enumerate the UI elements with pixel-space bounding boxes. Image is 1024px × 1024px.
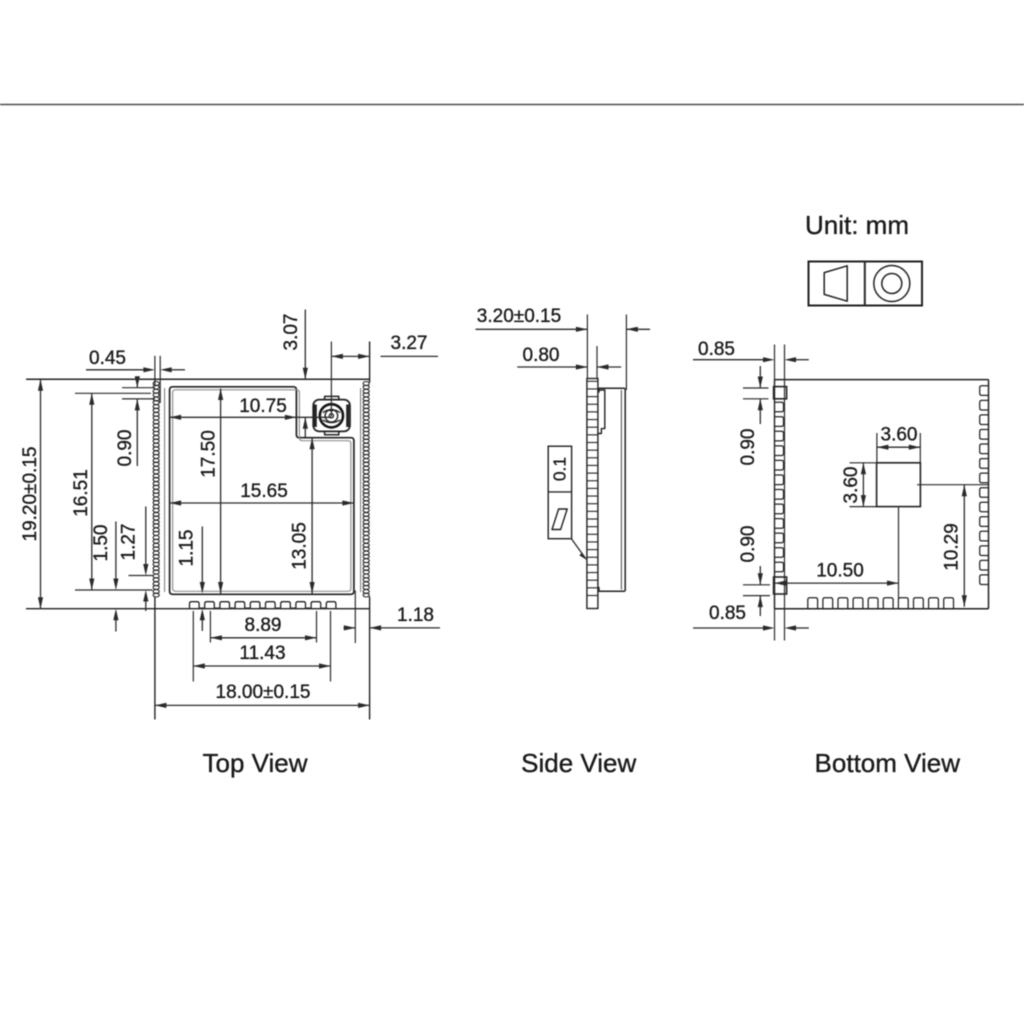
svg-text:15.65: 15.65	[240, 481, 288, 502]
svg-text:1.27: 1.27	[119, 524, 140, 561]
svg-text:Bottom View: Bottom View	[815, 748, 961, 778]
svg-text:0.85: 0.85	[709, 603, 746, 624]
svg-text:16.51: 16.51	[71, 469, 92, 517]
svg-text:10.50: 10.50	[816, 561, 864, 582]
svg-text:10.75: 10.75	[239, 396, 287, 417]
svg-text:1.18: 1.18	[397, 605, 434, 626]
svg-text:Unit: mm: Unit: mm	[805, 210, 909, 240]
svg-text:0.80: 0.80	[523, 345, 560, 366]
svg-text:1.15: 1.15	[177, 530, 198, 567]
svg-text:Top View: Top View	[202, 748, 307, 778]
svg-text:13.05: 13.05	[290, 522, 311, 570]
svg-text:18.00±0.15: 18.00±0.15	[216, 682, 311, 703]
svg-text:0.90: 0.90	[115, 430, 136, 467]
svg-text:17.50: 17.50	[199, 430, 220, 478]
svg-text:0.45: 0.45	[89, 348, 126, 369]
svg-text:3.60: 3.60	[841, 467, 862, 504]
svg-text:3.07: 3.07	[281, 314, 302, 351]
svg-text:8.89: 8.89	[245, 615, 282, 636]
svg-text:3.20±0.15: 3.20±0.15	[477, 306, 561, 327]
svg-text:19.20±0.15: 19.20±0.15	[20, 447, 41, 542]
svg-text:Side View: Side View	[521, 748, 636, 778]
svg-text:0.90: 0.90	[738, 429, 759, 466]
svg-text:11.43: 11.43	[239, 643, 285, 664]
svg-text:3.27: 3.27	[391, 333, 428, 354]
svg-text:10.29: 10.29	[942, 523, 963, 571]
svg-text:0.1: 0.1	[550, 457, 570, 481]
svg-text:1.50: 1.50	[91, 525, 112, 562]
svg-text:3.60: 3.60	[881, 425, 918, 446]
svg-text:0.85: 0.85	[698, 339, 735, 360]
svg-text:0.90: 0.90	[738, 526, 759, 563]
